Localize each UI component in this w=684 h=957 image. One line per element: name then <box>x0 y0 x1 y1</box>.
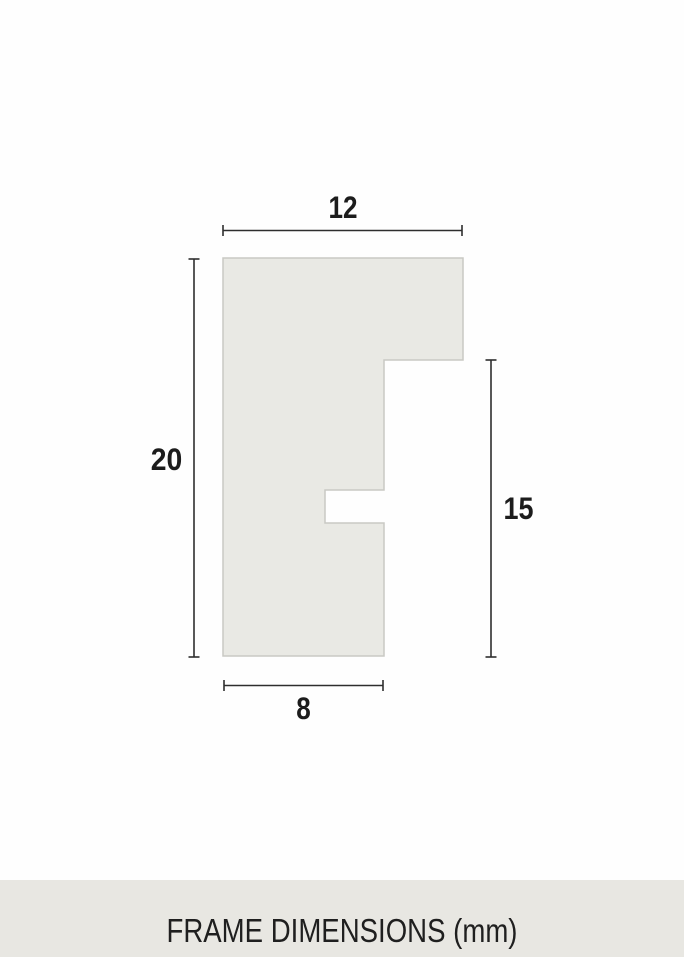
svg-text:FRAME DIMENSIONS (mm): FRAME DIMENSIONS (mm) <box>167 912 518 949</box>
svg-text:12: 12 <box>329 189 358 225</box>
svg-text:15: 15 <box>504 490 534 526</box>
svg-text:20: 20 <box>151 441 183 477</box>
svg-text:8: 8 <box>296 690 311 726</box>
